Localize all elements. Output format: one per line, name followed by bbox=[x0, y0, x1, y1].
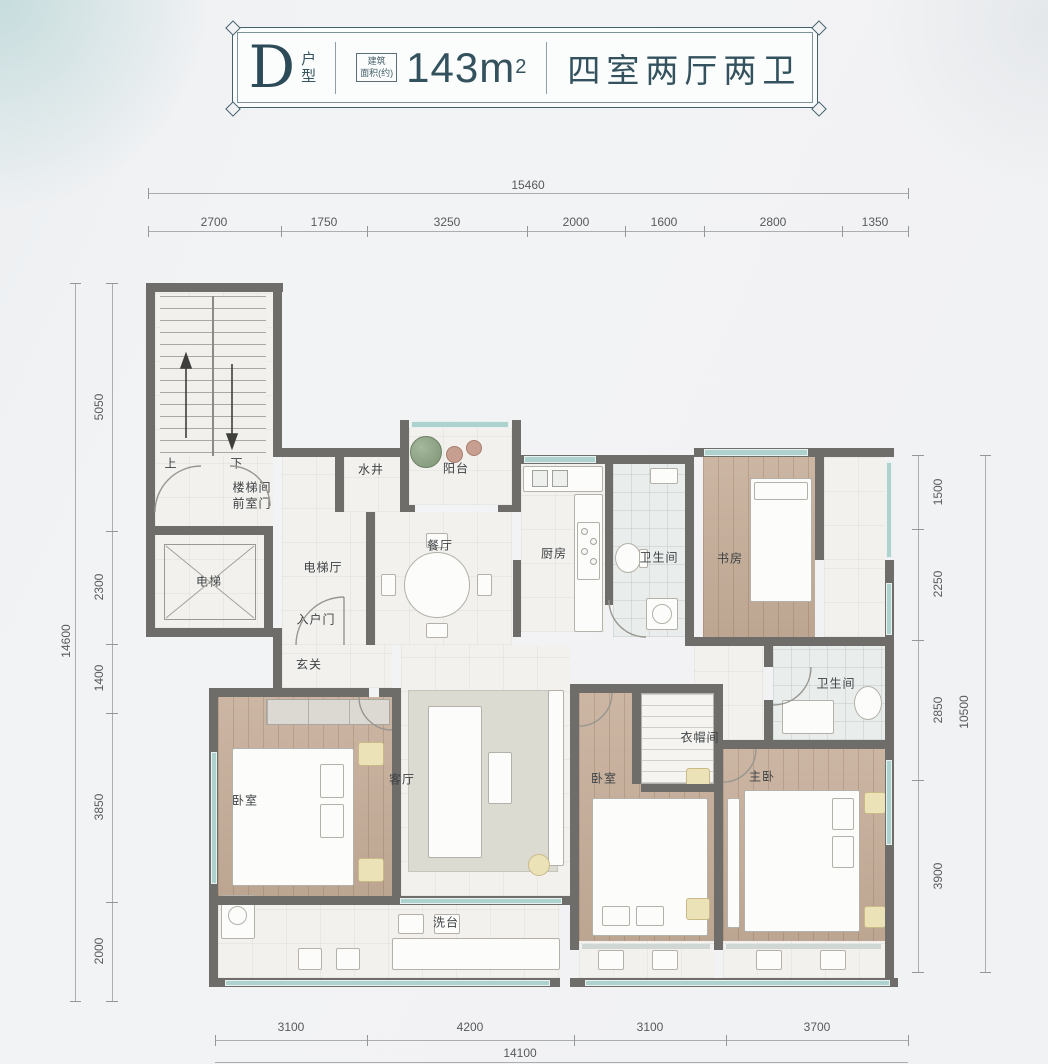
wall-segment bbox=[146, 628, 273, 637]
wall-segment bbox=[264, 526, 273, 637]
dimension-tick bbox=[215, 1035, 216, 1046]
dimension-tick bbox=[148, 226, 149, 237]
dimension-tick bbox=[281, 226, 282, 237]
wall-segment bbox=[146, 283, 155, 637]
plaque-divider bbox=[546, 42, 547, 94]
dimension-label: 2800 bbox=[760, 215, 787, 229]
dining-chair bbox=[477, 574, 492, 596]
pillow bbox=[636, 906, 664, 926]
dimension-label: 2000 bbox=[563, 215, 590, 229]
dimension-label: 3250 bbox=[434, 215, 461, 229]
window-glass bbox=[704, 449, 808, 456]
wash-counter bbox=[392, 938, 560, 970]
dimension-label: 2300 bbox=[92, 574, 106, 601]
nightstand bbox=[864, 792, 886, 814]
pillow bbox=[754, 482, 808, 500]
dimension-tick bbox=[980, 972, 991, 973]
dimension-tick bbox=[367, 226, 368, 237]
label-walkin-closet: 衣帽间 bbox=[680, 729, 719, 746]
dimension-line bbox=[75, 283, 76, 1001]
label-entry-door: 入户门 bbox=[296, 611, 335, 628]
study-cabinet bbox=[824, 560, 885, 637]
wall-segment bbox=[146, 526, 273, 535]
layout-summary: 四室两厅两卫 bbox=[567, 44, 801, 92]
dimension-tick bbox=[106, 283, 118, 284]
dimension-label: 1600 bbox=[651, 215, 678, 229]
label-water-shaft: 水井 bbox=[358, 461, 384, 478]
window-glass bbox=[585, 980, 890, 986]
nightstand bbox=[864, 906, 886, 928]
label-balcony: 阳台 bbox=[443, 460, 469, 477]
dimension-label: 2000 bbox=[92, 938, 106, 965]
window-glass bbox=[524, 456, 596, 463]
dimension-label: 3900 bbox=[931, 863, 945, 890]
bench bbox=[727, 798, 740, 928]
dimension-tick bbox=[625, 226, 626, 237]
bay-window-sill bbox=[582, 944, 710, 949]
wall-segment bbox=[605, 455, 613, 605]
window-glass bbox=[211, 752, 217, 884]
dimension-tick bbox=[704, 226, 705, 237]
kitchen-sink bbox=[552, 470, 568, 487]
dimension-tick bbox=[106, 531, 118, 532]
pillow bbox=[602, 906, 630, 926]
window-glass bbox=[225, 980, 550, 986]
label-living-room: 客厅 bbox=[389, 771, 415, 788]
dimension-tick bbox=[908, 226, 909, 237]
bathroom-sink bbox=[650, 468, 678, 484]
dimension-tick bbox=[912, 972, 924, 973]
window-glass bbox=[400, 898, 562, 904]
label-stair-down: 下 bbox=[230, 455, 243, 472]
toilet bbox=[615, 543, 641, 573]
wall-segment bbox=[815, 448, 824, 560]
dimension-tick bbox=[908, 188, 909, 199]
dimension-label: 3700 bbox=[804, 1020, 831, 1034]
dimension-line bbox=[985, 455, 986, 972]
label-study: 书房 bbox=[717, 550, 743, 567]
tv-console bbox=[548, 690, 564, 866]
dimension-line bbox=[148, 193, 908, 194]
plaque-corner-ornament bbox=[225, 101, 241, 117]
label-wash-counter: 洗台 bbox=[433, 914, 459, 931]
window-glass bbox=[886, 462, 892, 558]
unit-letter: D bbox=[249, 41, 296, 93]
dimension-label: 1750 bbox=[311, 215, 338, 229]
wall-segment bbox=[632, 693, 641, 784]
stool bbox=[336, 948, 360, 970]
wall-segment bbox=[512, 420, 521, 512]
pouf bbox=[528, 854, 550, 876]
wall-segment bbox=[764, 637, 773, 667]
wall-segment bbox=[209, 688, 369, 697]
plaque-corner-ornament bbox=[811, 101, 827, 117]
plaque-corner-ornament bbox=[225, 20, 241, 36]
label-foyer: 玄关 bbox=[296, 656, 322, 673]
bay-window-sill bbox=[726, 944, 881, 949]
kitchen-sink bbox=[532, 470, 548, 487]
nightstand bbox=[358, 858, 384, 882]
dimension-tick bbox=[70, 1001, 81, 1002]
plant-icon bbox=[466, 440, 482, 456]
pillow bbox=[832, 836, 854, 868]
dimension-label: 1350 bbox=[862, 215, 889, 229]
dimension-label: 3850 bbox=[92, 794, 106, 821]
dimension-tick bbox=[842, 226, 843, 237]
dimension-label: 5050 bbox=[92, 394, 106, 421]
label-kitchen: 厨房 bbox=[541, 545, 567, 562]
dimension-tick bbox=[106, 902, 118, 903]
wall-segment bbox=[366, 512, 375, 645]
area-value: 143m bbox=[406, 44, 515, 92]
dimension-label: 14100 bbox=[503, 1046, 536, 1060]
label-master-bedroom: 主卧 bbox=[749, 768, 775, 785]
area-badge-line2: 面积(约) bbox=[360, 68, 393, 78]
dimension-label: 2250 bbox=[931, 571, 945, 598]
washer-door bbox=[652, 604, 672, 624]
dimension-tick bbox=[70, 283, 81, 284]
dimension-line bbox=[148, 231, 908, 232]
wall-segment bbox=[570, 684, 723, 693]
window-glass bbox=[886, 583, 892, 635]
dimension-tick bbox=[106, 644, 118, 645]
wall-segment bbox=[498, 505, 512, 512]
wardrobe bbox=[266, 699, 390, 725]
stool bbox=[652, 950, 678, 970]
stove-burner bbox=[590, 558, 597, 565]
label-bathroom-2: 卫生间 bbox=[816, 675, 855, 692]
wall-segment bbox=[146, 283, 283, 292]
plaque-divider bbox=[335, 42, 336, 94]
label-bedroom-1: 卧室 bbox=[232, 792, 258, 809]
dimension-tick bbox=[527, 226, 528, 237]
dining-chair bbox=[426, 623, 448, 638]
sofa bbox=[428, 706, 482, 858]
area-badge: 建筑 面积(约) bbox=[356, 53, 397, 82]
wall-segment bbox=[764, 700, 773, 749]
wall-segment bbox=[694, 637, 894, 646]
dimension-tick bbox=[574, 1035, 575, 1046]
wall-segment bbox=[570, 684, 579, 950]
dining-chair bbox=[381, 574, 396, 596]
label-elevator: 电梯 bbox=[196, 573, 222, 590]
dimension-tick bbox=[912, 529, 924, 530]
wall-segment bbox=[685, 455, 694, 646]
dining-table bbox=[404, 552, 470, 618]
wall-segment bbox=[335, 448, 344, 512]
dimension-tick bbox=[912, 780, 924, 781]
area-superscript: 2 bbox=[515, 56, 526, 79]
dimension-label: 1400 bbox=[92, 665, 106, 692]
dimension-line bbox=[112, 283, 113, 1001]
label-stairwell-line2: 前室门 bbox=[232, 495, 271, 512]
toilet bbox=[854, 686, 882, 720]
nightstand bbox=[686, 898, 710, 920]
dimension-tick bbox=[148, 188, 149, 199]
dimension-tick bbox=[367, 1035, 368, 1046]
label-stairwell-line1: 楼梯间 bbox=[232, 479, 271, 496]
floorplan-page: D 户型 建筑 面积(约) 143m 2 四室两厅两卫 楼梯间前室门上下电梯电梯… bbox=[0, 0, 1048, 1064]
stove-burner bbox=[581, 528, 588, 535]
dimension-label: 15460 bbox=[511, 178, 544, 192]
label-dining-room: 餐厅 bbox=[427, 537, 453, 554]
dimension-tick bbox=[106, 1001, 118, 1002]
stool bbox=[598, 950, 624, 970]
dimension-label: 14600 bbox=[59, 624, 73, 657]
dimension-tick bbox=[980, 455, 991, 456]
dimension-line bbox=[918, 455, 919, 972]
area-badge-line1: 建筑 bbox=[368, 56, 386, 66]
dimension-label: 2850 bbox=[931, 697, 945, 724]
dimension-label: 3100 bbox=[278, 1020, 305, 1034]
dimension-line bbox=[215, 1040, 908, 1041]
dimension-tick bbox=[106, 713, 118, 714]
dimension-label: 10500 bbox=[957, 695, 971, 728]
unit-title-plaque: D 户型 建筑 面积(约) 143m 2 四室两厅两卫 bbox=[232, 27, 818, 108]
stove-burner bbox=[581, 548, 588, 555]
window-glass bbox=[886, 760, 892, 845]
ac-platform-floor bbox=[824, 457, 885, 560]
label-stair-up: 上 bbox=[164, 455, 177, 472]
stair-divider bbox=[212, 296, 214, 456]
wall-segment bbox=[641, 784, 723, 792]
pillow bbox=[832, 798, 854, 830]
bath2-vanity bbox=[782, 700, 834, 734]
coffee-table bbox=[488, 752, 512, 804]
stool bbox=[756, 950, 782, 970]
wall-segment bbox=[764, 740, 894, 749]
dimension-tick bbox=[908, 1035, 909, 1046]
plaque-corner-ornament bbox=[811, 20, 827, 36]
wall-segment bbox=[400, 420, 409, 512]
dimension-label: 4200 bbox=[457, 1020, 484, 1034]
dimension-tick bbox=[912, 455, 924, 456]
wall-segment bbox=[273, 628, 282, 688]
nightstand bbox=[358, 742, 384, 766]
window-glass bbox=[411, 421, 509, 428]
dimension-tick bbox=[726, 1035, 727, 1046]
label-bedroom-2: 卧室 bbox=[591, 770, 617, 787]
dimension-label: 3100 bbox=[637, 1020, 664, 1034]
label-elevator-hall: 电梯厅 bbox=[303, 559, 342, 576]
pillow bbox=[320, 804, 344, 838]
cabinet bbox=[398, 914, 424, 934]
unit-suffix: 户型 bbox=[300, 51, 315, 85]
wall-segment bbox=[209, 896, 401, 905]
wall-segment bbox=[273, 283, 282, 457]
wall-segment bbox=[513, 560, 521, 637]
label-bathroom-1: 卫生间 bbox=[639, 549, 678, 566]
wall-segment bbox=[392, 688, 401, 905]
pillow bbox=[320, 764, 344, 798]
dimension-label: 1500 bbox=[931, 479, 945, 506]
stool bbox=[820, 950, 846, 970]
basin-bowl bbox=[228, 906, 247, 925]
plant-icon bbox=[410, 436, 442, 468]
dimension-label: 2700 bbox=[201, 215, 228, 229]
dimension-line bbox=[215, 1062, 908, 1063]
dimension-tick bbox=[912, 640, 924, 641]
stove-burner bbox=[590, 538, 597, 545]
stool bbox=[298, 948, 322, 970]
